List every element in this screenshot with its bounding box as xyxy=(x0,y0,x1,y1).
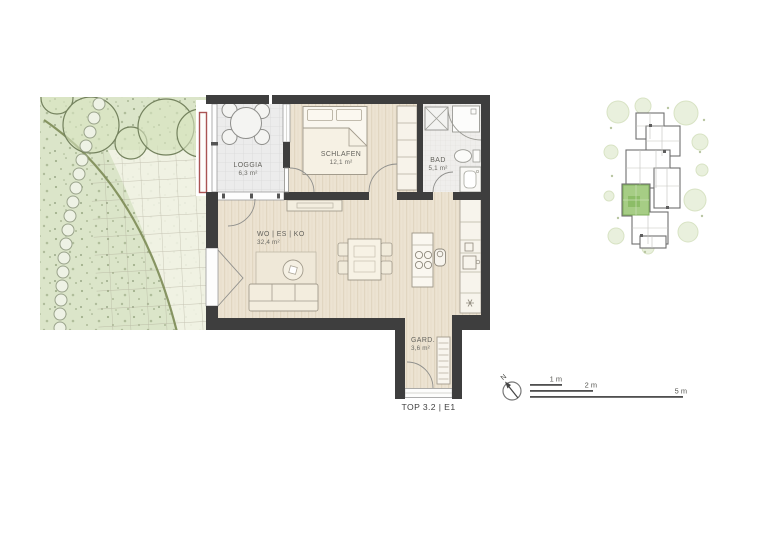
side-table xyxy=(283,260,303,280)
dining-table xyxy=(348,239,381,280)
island-sink xyxy=(435,249,446,266)
room-wohnen-area: 32,4 m² xyxy=(257,239,280,246)
floor-plan-drawing: LOGGIA 6,3 m² SCHLAFEN 12,1 m² BAD 5,1 m… xyxy=(0,0,771,545)
scale-label-5m: 5 m xyxy=(675,387,687,396)
north-label: N xyxy=(500,373,508,382)
gard-wardrobe xyxy=(437,337,450,384)
room-gard-name: GARD. xyxy=(411,337,435,344)
room-wohnen-name: WO | ES | KO xyxy=(257,231,305,238)
garden-plan xyxy=(40,82,225,339)
sofa xyxy=(249,284,318,311)
unit-label: TOP 3.2 | E1 xyxy=(401,402,455,412)
apartment-plan: LOGGIA 6,3 m² SCHLAFEN 12,1 m² BAD 5,1 m… xyxy=(206,95,490,412)
loggia-railing xyxy=(212,104,217,192)
toilet xyxy=(455,150,472,163)
planter-box xyxy=(200,113,207,193)
room-bad-area: 5,1 m² xyxy=(428,165,447,172)
room-schlafen-area: 12,1 m² xyxy=(330,159,353,166)
room-loggia-name: LOGGIA xyxy=(233,162,262,169)
unit-locator-map xyxy=(604,98,708,254)
scale-bar-1m xyxy=(530,384,562,386)
garden-french-door xyxy=(206,248,218,306)
loggia-bedroom-door xyxy=(285,168,289,192)
sideboard xyxy=(287,200,342,211)
kitchen-counter xyxy=(460,197,481,313)
room-bad-name: BAD xyxy=(430,157,446,164)
washing-machine xyxy=(453,106,480,132)
room-schlafen-name: SCHLAFEN xyxy=(321,151,361,158)
scale-bar-2m xyxy=(530,390,593,392)
wardrobe xyxy=(397,106,417,190)
north-compass: N xyxy=(500,373,521,400)
floor-plan-page: LOGGIA 6,3 m² SCHLAFEN 12,1 m² BAD 5,1 m… xyxy=(0,0,771,545)
room-loggia-area: 6,3 m² xyxy=(238,170,257,177)
scale-bar-5m xyxy=(530,396,683,398)
scale-label-1m: 1 m xyxy=(550,375,562,384)
room-gard-area: 3,6 m² xyxy=(411,345,430,352)
scale-bar: 1 m 2 m 5 m xyxy=(530,375,687,398)
scale-label-2m: 2 m xyxy=(585,381,597,390)
highlighted-unit xyxy=(623,185,649,215)
